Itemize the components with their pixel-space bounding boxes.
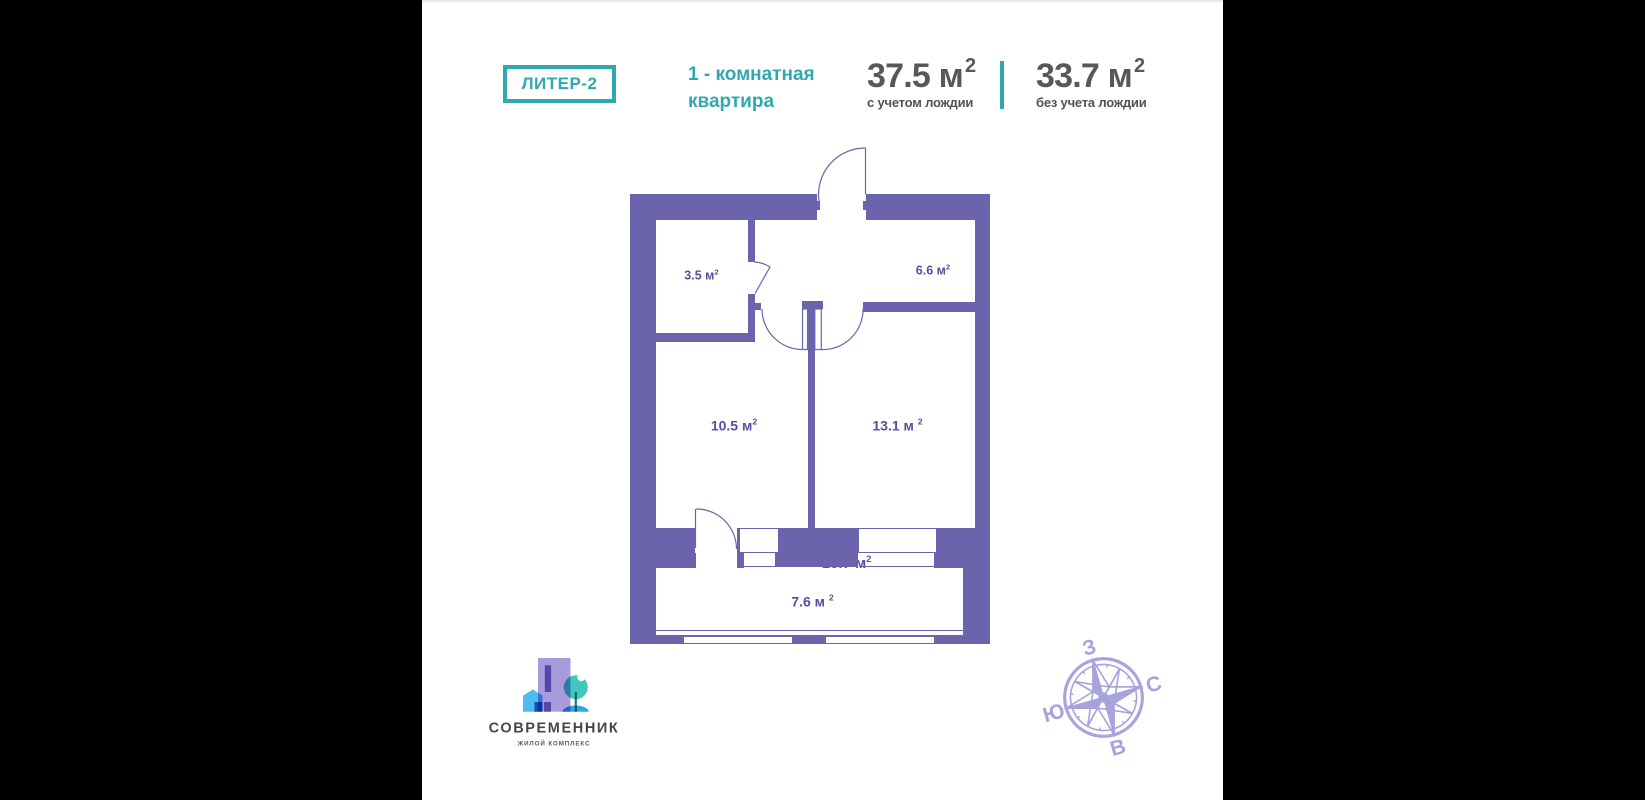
svg-text:Ю: Ю [1040, 699, 1067, 727]
svg-text:В: В [1108, 735, 1129, 761]
svg-text:З: З [1080, 635, 1099, 661]
svg-text:С: С [1143, 671, 1164, 697]
